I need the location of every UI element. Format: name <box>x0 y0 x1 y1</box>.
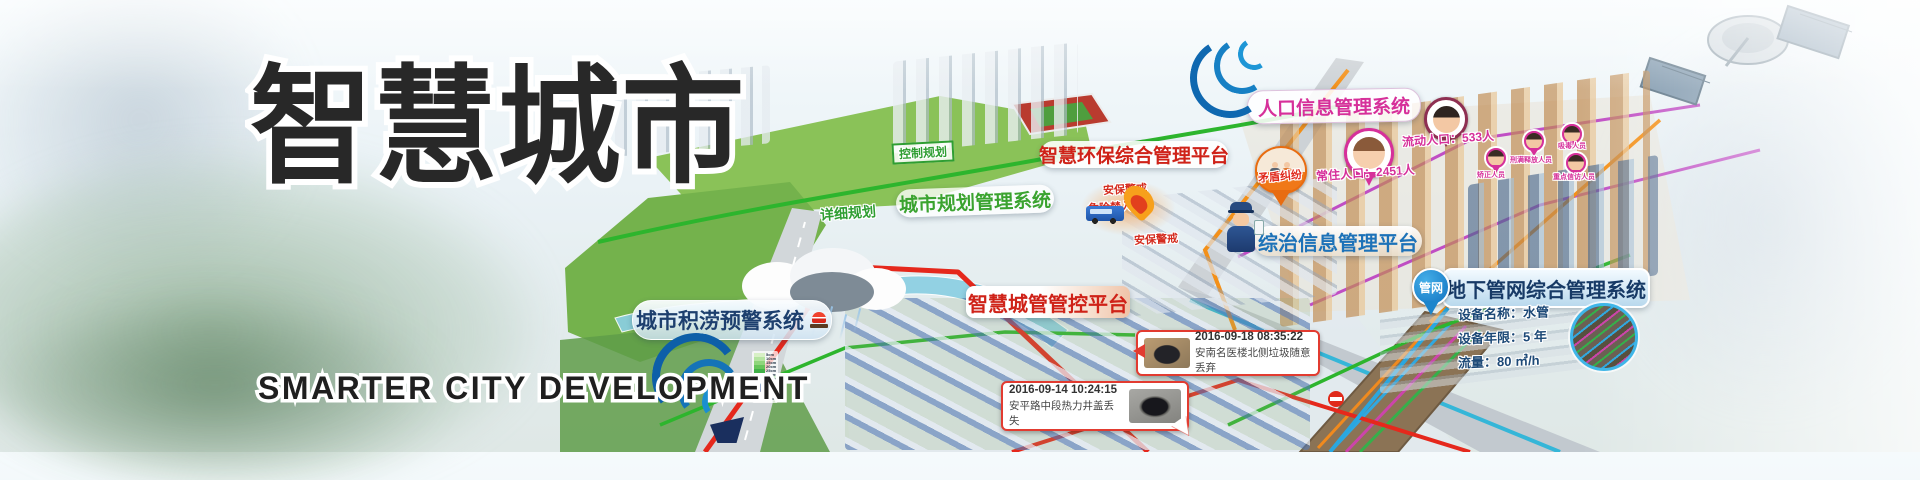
fire-truck-icon <box>1086 206 1124 221</box>
event-time: 2016-09-18 08:35:22 <box>1195 331 1312 343</box>
pipe-info-flow: 流量：80 ㎥/h <box>1458 349 1549 371</box>
page-subtitle: SMARTER CITY DEVELOPMENT <box>258 370 1920 407</box>
page-title: 智慧城市 <box>250 48 1920 208</box>
pipe-info-age: 设备年限：5 年 <box>1458 325 1549 347</box>
smart-city-banner: 智慧城市 SMARTER CITY DEVELOPMENT 城市积涝预警系统 5… <box>0 0 1920 452</box>
flood-warning-system-label: 城市积涝预警系统 <box>632 300 832 340</box>
flood-warning-label-text: 城市积涝预警系统 <box>636 305 804 335</box>
citymgmt-platform-label: 智慧城管管控平台 <box>966 286 1130 318</box>
trash-photo <box>1144 338 1190 368</box>
pipe-info-panel: 设备名称：水管 设备年限：5 年 流量：80 ㎥/h <box>1458 301 1549 376</box>
security-alert-text-bottom: 安保警戒 <box>1134 230 1179 248</box>
pipe-info-name: 设备名称：水管 <box>1458 301 1549 323</box>
zongzhi-platform-label: 综治信息管理平台 <box>1254 226 1422 256</box>
pipe-network-pin: 管网 <box>1412 268 1450 306</box>
pipe-magnifier-photo <box>1570 303 1638 371</box>
siren-icon <box>810 312 828 328</box>
callout-tail-left <box>1126 344 1145 358</box>
policeman-figure <box>1222 202 1264 256</box>
